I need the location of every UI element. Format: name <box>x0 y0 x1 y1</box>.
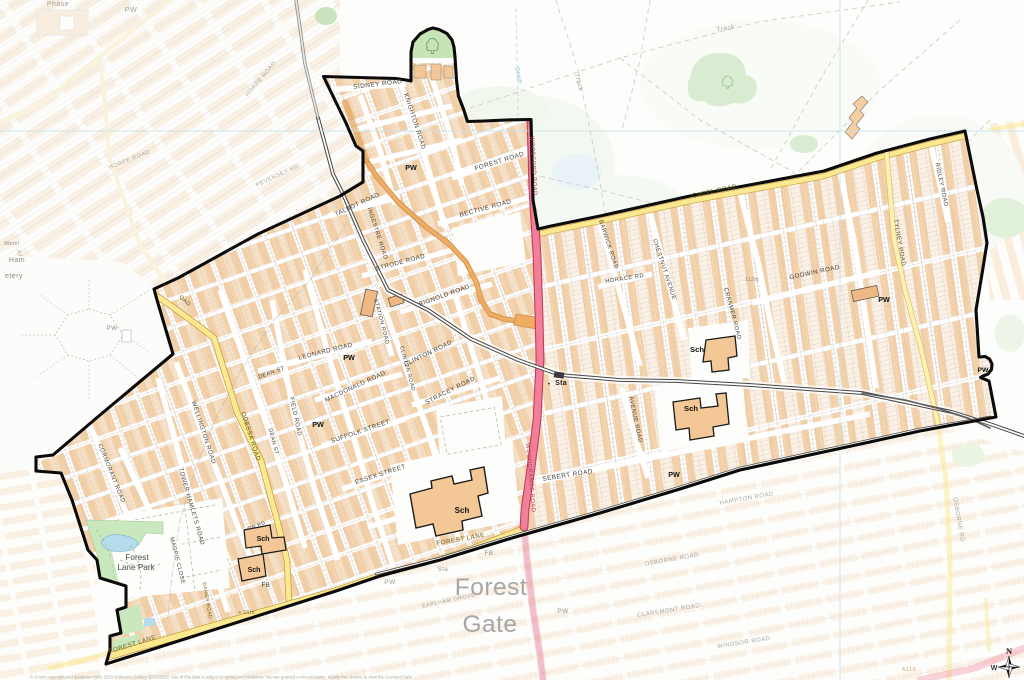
svg-text:PW: PW <box>405 163 417 172</box>
svg-text:PW: PW <box>557 608 569 615</box>
svg-text:• 11m: • 11m <box>239 610 255 616</box>
svg-text:FB: FB <box>262 582 271 589</box>
svg-text:Sta: Sta <box>438 567 449 573</box>
svg-text:Lane Park: Lane Park <box>117 563 155 572</box>
svg-text:N: N <box>1006 646 1013 656</box>
svg-text:Gate: Gate <box>462 611 517 638</box>
svg-text:PW: PW <box>125 5 138 14</box>
svg-text:•: • <box>548 382 550 388</box>
svg-text:Sch: Sch <box>684 404 698 413</box>
svg-text:Sch: Sch <box>455 506 470 515</box>
svg-text:Sch: Sch <box>257 536 270 543</box>
svg-text:PW: PW <box>978 367 990 374</box>
svg-text:PW: PW <box>878 295 890 304</box>
svg-text:Ham: Ham <box>9 257 25 264</box>
svg-text:PW: PW <box>343 353 355 362</box>
svg-text:Sch: Sch <box>248 567 261 574</box>
svg-text:etery: etery <box>5 273 23 280</box>
svg-text:Meml: Meml <box>4 241 19 247</box>
svg-text:PW: PW <box>106 325 117 332</box>
svg-text:Phase: Phase <box>47 1 69 8</box>
svg-text:Sch: Sch <box>690 345 704 354</box>
svg-text:112m: 112m <box>745 277 759 283</box>
svg-text:FB: FB <box>485 551 494 557</box>
svg-text:PW: PW <box>384 579 396 586</box>
svg-text:A118: A118 <box>902 667 916 673</box>
svg-text:PW: PW <box>668 470 680 479</box>
svg-text:© Crown copyright and database: © Crown copyright and database rights 20… <box>30 675 413 680</box>
svg-text:W: W <box>991 665 998 672</box>
svg-text:Sta: Sta <box>555 380 567 387</box>
svg-text:PW: PW <box>312 420 324 429</box>
svg-text:Forest: Forest <box>455 574 527 601</box>
svg-text:Forest: Forest <box>125 553 149 562</box>
